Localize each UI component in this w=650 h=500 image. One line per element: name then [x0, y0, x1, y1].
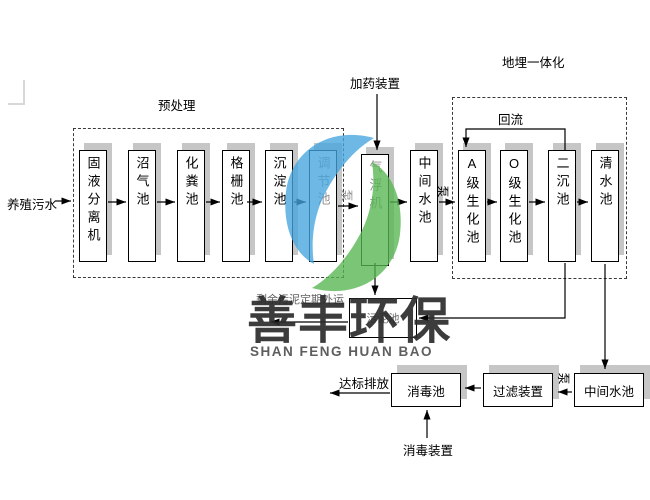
box-sludge-pool: 污泥池: [349, 298, 417, 338]
pump-label-1: 泵: [339, 189, 356, 201]
box-septic-tank: 化粪池: [177, 150, 205, 262]
box-secondary-sedimentation-pool: 二沉池: [548, 150, 576, 262]
page-corner-mark: [8, 80, 24, 104]
pump-label-3: 泵: [556, 372, 573, 384]
input-label: 养殖污水: [7, 194, 57, 213]
box-intermediate-pool-bottom: 中间水池: [574, 373, 644, 407]
box-clear-water-pool: 清水池: [591, 150, 619, 262]
discharge-label: 达标排放: [339, 373, 389, 392]
box-solid-liquid-separator: 固液分离机: [79, 150, 107, 262]
pretreatment-label: 预处理: [158, 95, 196, 114]
process-flow-diagram: 养殖污水 预处理 加药装置 地埋一体化 回流 剩余污泥定期外运 达标排放 消毒装…: [0, 0, 650, 500]
box-a-level-biochemical-pool: A级生化池: [458, 150, 486, 262]
box-regulating-pool: 调节池: [309, 150, 337, 262]
box-biogas-pool: 沼气池: [128, 150, 156, 262]
buried-integration-label: 地埋一体化: [502, 52, 565, 71]
box-grid-pool: 格栅池: [222, 150, 250, 262]
disinfect-device-label: 消毒装置: [403, 440, 453, 459]
pump-label-2: 泵: [435, 185, 452, 197]
box-air-flotation-machine: 气浮机: [361, 154, 389, 266]
reflux-label: 回流: [498, 109, 523, 128]
box-sedimentation-pool: 沉淀池: [265, 150, 293, 262]
box-filter-device: 过滤装置: [483, 373, 553, 407]
box-o-level-biochemical-pool: O级生化池: [500, 150, 528, 262]
sludge-removal-note: 剩余污泥定期外运: [256, 291, 344, 307]
box-disinfection-pool: 消毒池: [391, 373, 461, 407]
box-intermediate-pool-top: 中间水池: [410, 150, 438, 262]
watermark-subtitle: SHAN FENG HUAN BAO: [250, 344, 433, 359]
dosing-device-label: 加药装置: [350, 73, 400, 92]
